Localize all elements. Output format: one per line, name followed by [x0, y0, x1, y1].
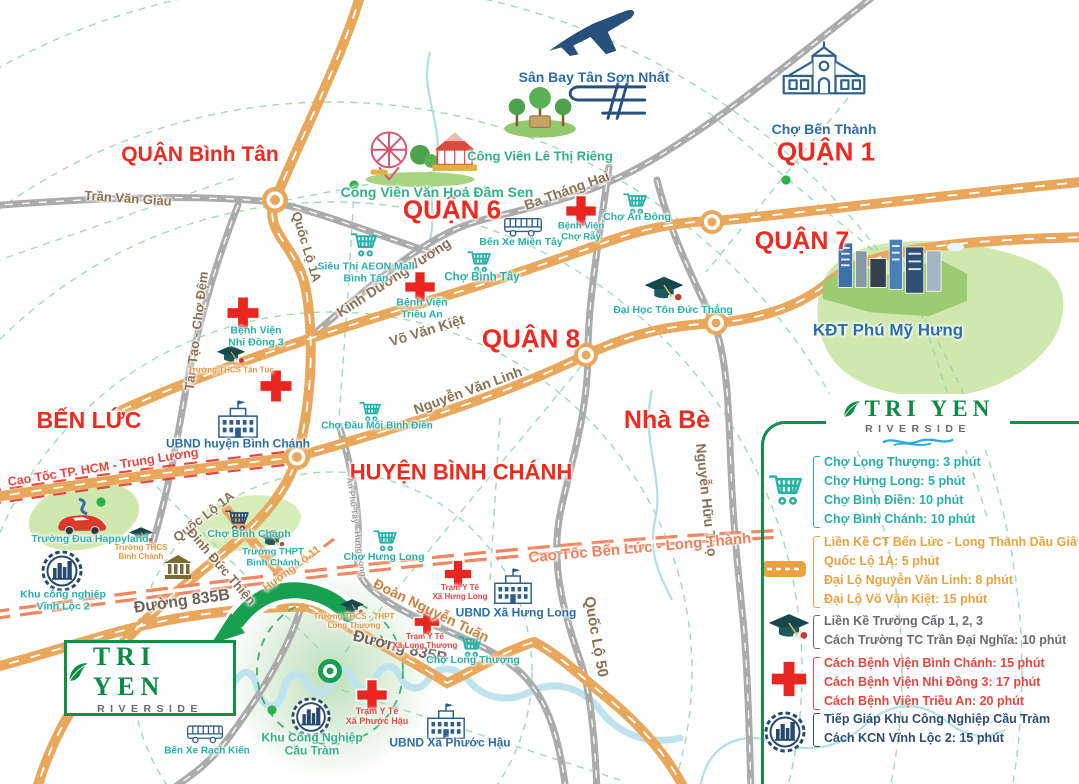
- cap-icon: [129, 527, 153, 541]
- cap-icon: [217, 346, 245, 363]
- dot-icon: [781, 175, 790, 184]
- gov-icon: [428, 703, 464, 738]
- cart-icon: [374, 531, 396, 550]
- map-canvas: QUẬN Bình TânQUẬN 6QUẬN 1QUẬN 7QUẬN 8BẾN…: [0, 0, 1079, 784]
- plane-icon: [549, 10, 634, 56]
- runway-icon: [570, 82, 644, 119]
- logo-leaf-icon: [67, 660, 90, 684]
- legend-logo: TRI YEN RIVERSIDE: [826, 394, 1010, 450]
- roundabout-icon: [704, 311, 728, 335]
- dot-icon: [349, 180, 358, 189]
- logo-subtitle: RIVERSIDE: [865, 423, 971, 435]
- logo-name: TRI YEN: [865, 396, 995, 422]
- bank-icon: [164, 555, 192, 579]
- logo-leaf-icon: [842, 399, 862, 419]
- cross-icon: [227, 297, 260, 330]
- gov-icon: [219, 400, 257, 437]
- legend-panel: [761, 421, 1079, 784]
- logo-name: TRI YEN: [93, 642, 233, 702]
- gov-icon: [495, 568, 531, 603]
- logo-subtitle: RIVERSIDE: [97, 703, 203, 715]
- dot-icon: [96, 497, 105, 506]
- dot-icon: [267, 705, 276, 714]
- cart-icon: [352, 234, 376, 255]
- park-icon: [504, 87, 576, 138]
- roundabout-icon: [574, 343, 598, 367]
- logo-wave-icon: [873, 435, 963, 448]
- damsen-icon: [365, 132, 477, 187]
- cart-icon: [360, 403, 380, 421]
- industry-icon: [293, 699, 329, 735]
- cross-icon: [260, 370, 293, 403]
- cap-icon: [645, 277, 684, 301]
- benthanh-icon: [784, 41, 865, 93]
- project-logo-box: TRI YEN RIVERSIDE: [64, 640, 236, 716]
- bus-icon: [188, 726, 223, 743]
- cart-icon: [624, 194, 646, 213]
- roundabout-icon: [284, 444, 310, 470]
- roundabout-icon: [262, 187, 288, 213]
- project-marker: [318, 659, 342, 683]
- cart-icon: [468, 252, 490, 271]
- industry-icon: [43, 552, 81, 590]
- bus-icon: [505, 219, 542, 236]
- roundabout-icon: [700, 210, 724, 234]
